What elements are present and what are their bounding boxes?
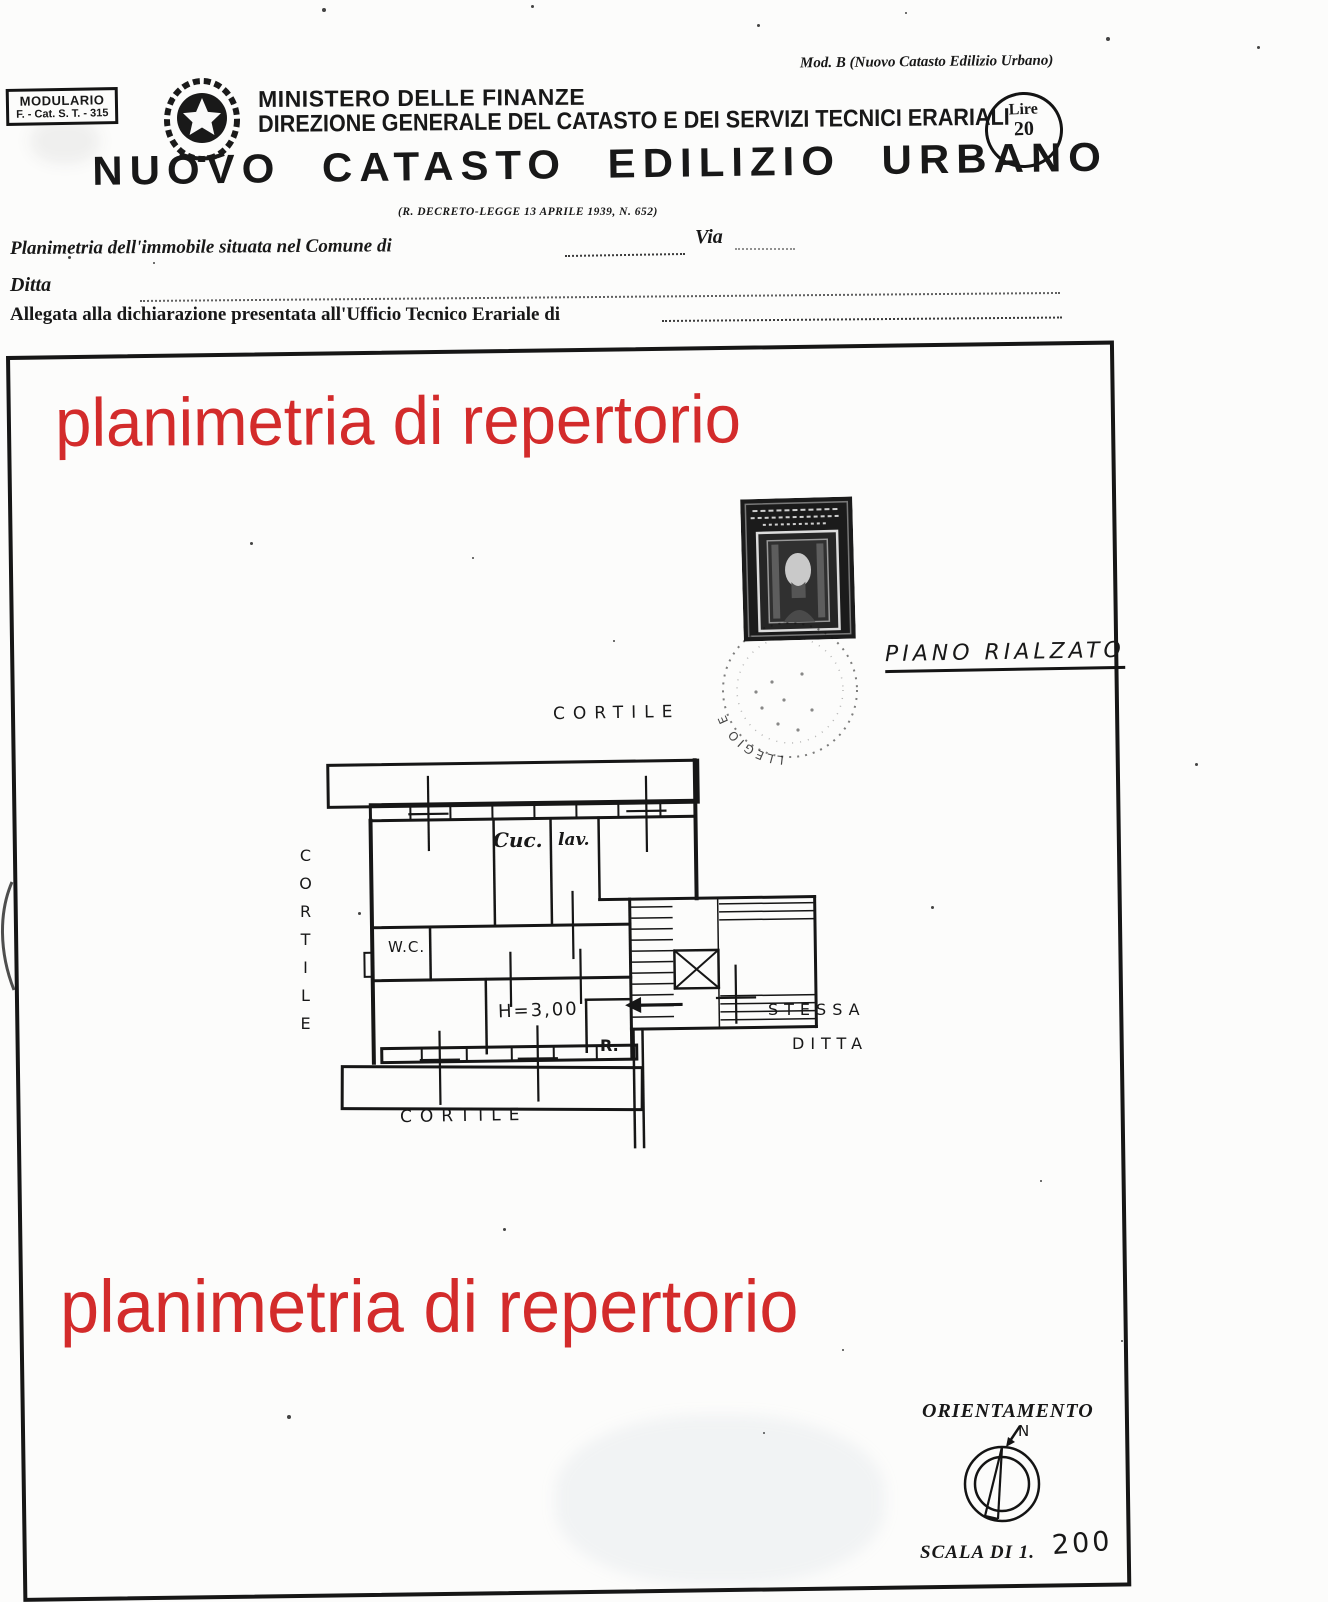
compass-icon: N [956,1420,1056,1538]
room-height-label: H=3,00 [498,999,579,1023]
form-via-fill [735,246,795,250]
floor-label: PIANO RIALZATO [885,638,1125,673]
cortile-bottom-label: CORTILE [400,1105,528,1127]
room-kitchen-label: Cuc. [493,828,543,852]
room-closet-label: R. [600,1036,619,1055]
cortile-left-label: CORTILE [296,846,315,1042]
scale-label: SCALA DI 1. [920,1542,1035,1564]
modulario-box: MODULARIO F. - Cat. S. T. - 315 [6,87,119,126]
edge-mark [0,880,18,992]
form-line2-fill [140,290,1060,302]
modulario-line1: MODULARIO [16,92,109,109]
room-wc-label: W.C. [388,938,425,956]
modulario-line2: F. - Cat. S. T. - 315 [16,107,109,121]
north-label: N [1018,1422,1029,1440]
floor-plan-drawing [277,696,863,1156]
form-via-label: Via [695,226,723,249]
room-laundry-label: lav. [558,830,590,850]
cortile-top-label: CORTILE [553,702,681,724]
same-owner-label-line1: STESSA [768,1000,866,1019]
directorate-line: DIREZIONE GENERALE DEL CATASTO E DEI SER… [258,104,1010,139]
form-line1-label: Planimetria dell'immobile situata nel Co… [10,235,392,260]
form-line3-label: Allegata alla dichiarazione presentata a… [10,304,560,326]
form-line3-fill [662,315,1062,322]
decree-note: (R. DECRETO-LEGGE 13 APRILE 1939, N. 652… [398,206,658,218]
mod-b-note: Mod. B (Nuovo Catasto Edilizio Urbano) [800,53,1054,73]
watermark-top: planimetria di repertorio [55,384,741,459]
same-owner-label-line2: DITTA [792,1034,868,1053]
watermark-bottom: planimetria di repertorio [60,1268,799,1346]
form-line1-fill [565,251,685,257]
form-line2-label: Ditta [10,274,51,297]
scanned-cadastral-document: { "document": { "modulario": { "line1": … [0,0,1328,1600]
scale-value: 200 [1051,1526,1114,1561]
